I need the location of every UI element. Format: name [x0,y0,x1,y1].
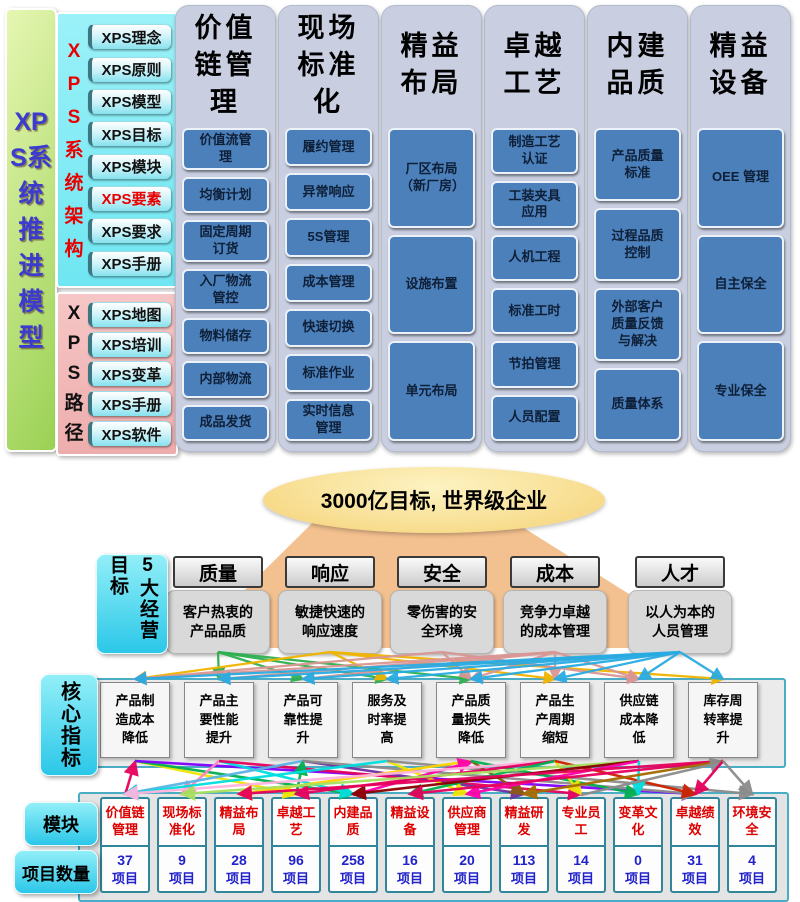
pillar-title: 精益设备 [691,6,790,124]
vision-text: 3000亿目标, 世界级企业 [321,485,547,515]
goal-description-text: 客户热衷的产品品质 [179,603,257,641]
module-project-count: 96项目 [273,845,319,891]
module-count-unit: 项目 [397,868,423,887]
module-count-number: 14 [573,852,589,868]
indicator-text: 库存周转率提升 [698,692,748,749]
xps-path-group: XPS路径 XPS地图XPS培训XPS变革XPS手册XPS软件 [56,292,178,456]
goals-row-label: 5大经营目标 [96,554,168,654]
pillar-item: 外部客户质量反馈与解决 [594,288,681,361]
module-project-count: 113项目 [501,845,547,891]
connection-arrow [218,652,219,679]
module-cell: 内建品质258项目 [328,797,378,893]
xps-model-diagram: XPS系统推进模型 XPS系统架构 XPS理念XPS原则XPS模型XPS目标XP… [0,0,800,902]
module-project-count: 20项目 [444,845,490,891]
module-count-unit: 项目 [283,868,309,887]
pillar-title-text: 卓越工艺 [499,28,570,102]
connection-arrow [135,652,680,679]
xps-architecture-group: XPS系统架构 XPS理念XPS原则XPS模型XPS目标XPS模块XPS要素XP… [56,12,178,288]
module-name: 价值链管理 [102,799,148,845]
module-name: 变革文化 [615,799,661,845]
xps-architecture-item: XPS目标 [88,121,171,146]
model-title: XPS系统推进模型 [9,104,53,356]
module-project-count: 258项目 [330,845,376,891]
indicator-box: 产品生产周期缩短 [520,682,590,758]
xps-architecture-label-text: XPS系统架构 [62,35,86,266]
pillar-item: 人机工程 [491,235,578,281]
pillar-column: 精益布局厂区布局（新厂房）设施布置单元布局 [381,5,482,452]
module-cell: 现场标准化9项目 [157,797,207,893]
indicator-text: 供应链成本降低 [614,692,664,749]
indicator-box: 产品质量损失降低 [436,682,506,758]
module-name: 现场标准化 [159,799,205,845]
module-count-unit: 项目 [112,868,138,887]
pillar-item: 物料储存 [182,318,269,354]
pillar-item: 成本管理 [285,264,372,302]
xps-architecture-item: XPS要求 [88,218,171,243]
model-title-bar: XPS系统推进模型 [5,8,57,452]
goal-title: 质量 [173,556,263,588]
module-name: 专业员工 [558,799,604,845]
module-count-number: 113 [513,852,536,868]
indicator-box: 服务及时率提高 [352,682,422,758]
pillar-title: 价值链管理 [176,6,275,124]
indicator-text: 服务及时率提高 [362,692,412,749]
pillar-item-list: 价值流管理均衡计划固定周期订货入厂物流管控物料储存内部物流成品发货 [176,124,275,451]
goal-group: 质量客户热衷的产品品质 [166,556,270,654]
pillar-title-text: 精益布局 [396,28,467,102]
pillar-column: 现场标准化履约管理异常响应5S管理成本管理快速切换标准作业实时信息管理 [278,5,379,452]
connection-arrow [555,652,680,679]
module-project-count: 0项目 [615,845,661,891]
goal-title: 成本 [510,556,600,588]
module-cell: 卓越工艺96项目 [271,797,321,893]
xps-path-item: XPS地图 [88,302,171,327]
module-count-number: 28 [231,852,247,868]
pillar-item: 过程品质控制 [594,208,681,281]
pillar-item: 价值流管理 [182,128,269,170]
pillar-item: 质量体系 [594,368,681,441]
module-count-number: 4 [748,852,756,868]
module-count-unit: 项目 [682,868,708,887]
pillar-title: 内建品质 [588,6,687,124]
pillar-column: 精益设备OEE 管理自主保全专业保全 [690,5,791,452]
connection-arrow [555,652,639,679]
connection-arrow [135,652,555,679]
goal-description-text: 敏捷快速的响应速度 [291,603,369,641]
xps-architecture-item: XPS模型 [88,89,171,114]
goal-group: 安全零伤害的安全环境 [390,556,494,654]
pillar-item: 成品发货 [182,405,269,441]
module-cell: 卓越绩效31项目 [670,797,720,893]
indicator-text: 产品制造成本降低 [110,692,160,749]
xps-path-items: XPS地图XPS培训XPS变革XPS手册XPS软件 [88,294,176,454]
modules-row-label: 模块 [24,802,98,846]
goal-description-text: 零伤害的安全环境 [403,603,481,641]
module-cell: 价值链管理37项目 [100,797,150,893]
indicator-text: 产品生产周期缩短 [530,692,580,749]
module-name: 卓越工艺 [273,799,319,845]
pillar-title-text: 精益设备 [705,28,776,102]
module-project-count: 31项目 [672,845,718,891]
pillar-item: 产品质量标准 [594,128,681,201]
module-project-count: 9项目 [159,845,205,891]
connection-arrow [218,652,303,679]
pillar-column: 价值链管理价值流管理均衡计划固定周期订货入厂物流管控物料储存内部物流成品发货 [175,5,276,452]
goal-description: 以人为本的人员管理 [628,590,732,654]
xps-path-label: XPS路径 [58,294,88,454]
module-name: 供应商管理 [444,799,490,845]
module-count-number: 0 [634,852,642,868]
pillar-column: 卓越工艺制造工艺认证工装夹具应用人机工程标准工时节拍管理人员配置 [484,5,585,452]
indicator-box: 产品可靠性提升 [268,682,338,758]
xps-architecture-items: XPS理念XPS原则XPS模型XPS目标XPS模块XPS要素XPS要求XPS手册 [88,14,176,286]
indicator-text: 产品可靠性提升 [278,692,328,749]
goal-description: 零伤害的安全环境 [390,590,494,654]
pillar-item: 标准作业 [285,354,372,392]
module-cell: 精益设备16项目 [385,797,435,893]
pillar-item: 快速切换 [285,309,372,347]
connection-arrow [135,652,330,679]
xps-architecture-item: XPS模块 [88,154,171,179]
pillar-item: 5S管理 [285,218,372,256]
pillar-title: 卓越工艺 [485,6,584,124]
indicators-row-label: 核心指标 [40,674,98,776]
goal-description: 客户热衷的产品品质 [166,590,270,654]
module-cell: 供应商管理20项目 [442,797,492,893]
module-count-number: 16 [402,852,418,868]
indicator-box: 产品主要性能提升 [184,682,254,758]
module-cell: 精益布局28项目 [214,797,264,893]
pillar-item-list: 产品质量标准过程品质控制外部客户质量反馈与解决质量体系 [588,124,687,451]
goal-title: 人才 [635,556,725,588]
connection-arrow [219,652,555,679]
xps-path-item: XPS变革 [88,361,171,386]
module-count-number: 20 [459,852,475,868]
goal-group: 响应敏捷快速的响应速度 [278,556,382,654]
connection-arrow [471,652,555,679]
module-count-unit: 项目 [511,868,537,887]
goal-title: 响应 [285,556,375,588]
project-count-row-label: 项目数量 [14,850,98,894]
pillar-item: OEE 管理 [697,128,784,228]
connection-arrow [330,652,555,679]
indicator-text: 产品主要性能提升 [194,692,244,749]
connection-arrow [471,652,680,679]
pillar-item: 设施布置 [388,235,475,335]
pillar-item-list: 制造工艺认证工装夹具应用人机工程标准工时节拍管理人员配置 [485,124,584,451]
module-count-number: 31 [687,852,703,868]
pillar-item: 标准工时 [491,288,578,334]
pillar-item: 内部物流 [182,361,269,397]
goal-group: 成本竞争力卓越的成本管理 [503,556,607,654]
pillar-item-list: 厂区布局（新厂房）设施布置单元布局 [382,124,481,451]
connection-arrow [135,652,442,679]
pillar-item: 均衡计划 [182,177,269,213]
xps-architecture-item: XPS理念 [88,24,171,49]
pillar-title-text: 现场标准化 [293,10,364,121]
connection-arrow [639,652,680,679]
module-count-unit: 项目 [568,868,594,887]
connection-arrow [218,652,387,679]
pillar-item: 单元布局 [388,341,475,441]
pillar-title-text: 内建品质 [602,28,673,102]
connection-arrow [680,652,723,679]
pillar-item: 人员配置 [491,395,578,441]
connection-arrow [303,652,680,679]
module-name: 精益设备 [387,799,433,845]
module-project-count: 28项目 [216,845,262,891]
vision-ellipse: 3000亿目标, 世界级企业 [263,467,605,533]
module-name: 内建品质 [330,799,376,845]
pillar-item: 制造工艺认证 [491,128,578,174]
xps-architecture-item: XPS原则 [88,57,171,82]
connection-arrow [219,652,680,679]
pillar-item: 节拍管理 [491,341,578,387]
connection-arrow [303,652,555,679]
xps-architecture-label: XPS系统架构 [58,14,88,286]
connection-arrow [330,652,387,679]
pillar-item: 厂区布局（新厂房） [388,128,475,228]
xps-path-item: XPS软件 [88,421,171,446]
module-name: 卓越绩效 [672,799,718,845]
pillar-item: 实时信息管理 [285,399,372,441]
xps-path-label-text: XPS路径 [62,299,86,449]
goal-title: 安全 [397,556,487,588]
pillar-item-list: OEE 管理自主保全专业保全 [691,124,790,451]
module-count-unit: 项目 [226,868,252,887]
module-count-unit: 项目 [625,868,651,887]
module-count-number: 258 [341,852,364,868]
module-count-unit: 项目 [169,868,195,887]
module-count-unit: 项目 [454,868,480,887]
connection-arrow [218,652,471,679]
goal-group: 人才以人为本的人员管理 [628,556,732,654]
pillar-item: 固定周期订货 [182,220,269,262]
connection-arrow [442,652,471,679]
module-name: 精益布局 [216,799,262,845]
pillar-item-list: 履约管理异常响应5S管理成本管理快速切换标准作业实时信息管理 [279,124,378,451]
module-count-number: 37 [117,852,133,868]
goal-description: 竞争力卓越的成本管理 [503,590,607,654]
goal-description-text: 以人为本的人员管理 [641,603,719,641]
xps-architecture-item: XPS要素 [88,186,171,211]
xps-path-item: XPS培训 [88,332,171,357]
module-cell: 变革文化0项目 [613,797,663,893]
pillar-item: 异常响应 [285,173,372,211]
module-cell: 精益研发113项目 [499,797,549,893]
pillar-column: 内建品质产品质量标准过程品质控制外部客户质量反馈与解决质量体系 [587,5,688,452]
pillar-title: 精益布局 [382,6,481,124]
connection-arrow [330,652,723,679]
goal-description: 敏捷快速的响应速度 [278,590,382,654]
module-project-count: 37项目 [102,845,148,891]
module-name: 环境安全 [729,799,775,845]
module-cell: 专业员工14项目 [556,797,606,893]
pillar-item: 工装夹具应用 [491,181,578,227]
module-name: 精益研发 [501,799,547,845]
pillar-item: 专业保全 [697,341,784,441]
module-count-number: 9 [178,852,186,868]
goal-description-text: 竞争力卓越的成本管理 [516,603,594,641]
connection-arrow [387,652,680,679]
module-count-number: 96 [288,852,304,868]
connection-arrow [442,652,639,679]
module-project-count: 16项目 [387,845,433,891]
pillar-title: 现场标准化 [279,6,378,124]
pillar-item: 入厂物流管控 [182,269,269,311]
module-cell: 环境安全4项目 [727,797,777,893]
indicator-text: 产品质量损失降低 [446,692,496,749]
pillar-item: 履约管理 [285,128,372,166]
pillar-title-text: 价值链管理 [190,10,261,121]
module-project-count: 4项目 [729,845,775,891]
indicator-box: 供应链成本降低 [604,682,674,758]
module-count-unit: 项目 [739,868,765,887]
indicator-box: 库存周转率提升 [688,682,758,758]
module-project-count: 14项目 [558,845,604,891]
indicator-box: 产品制造成本降低 [100,682,170,758]
xps-architecture-item: XPS手册 [88,251,171,276]
pillar-item: 自主保全 [697,235,784,335]
module-count-unit: 项目 [340,868,366,887]
xps-path-item: XPS手册 [88,391,171,416]
